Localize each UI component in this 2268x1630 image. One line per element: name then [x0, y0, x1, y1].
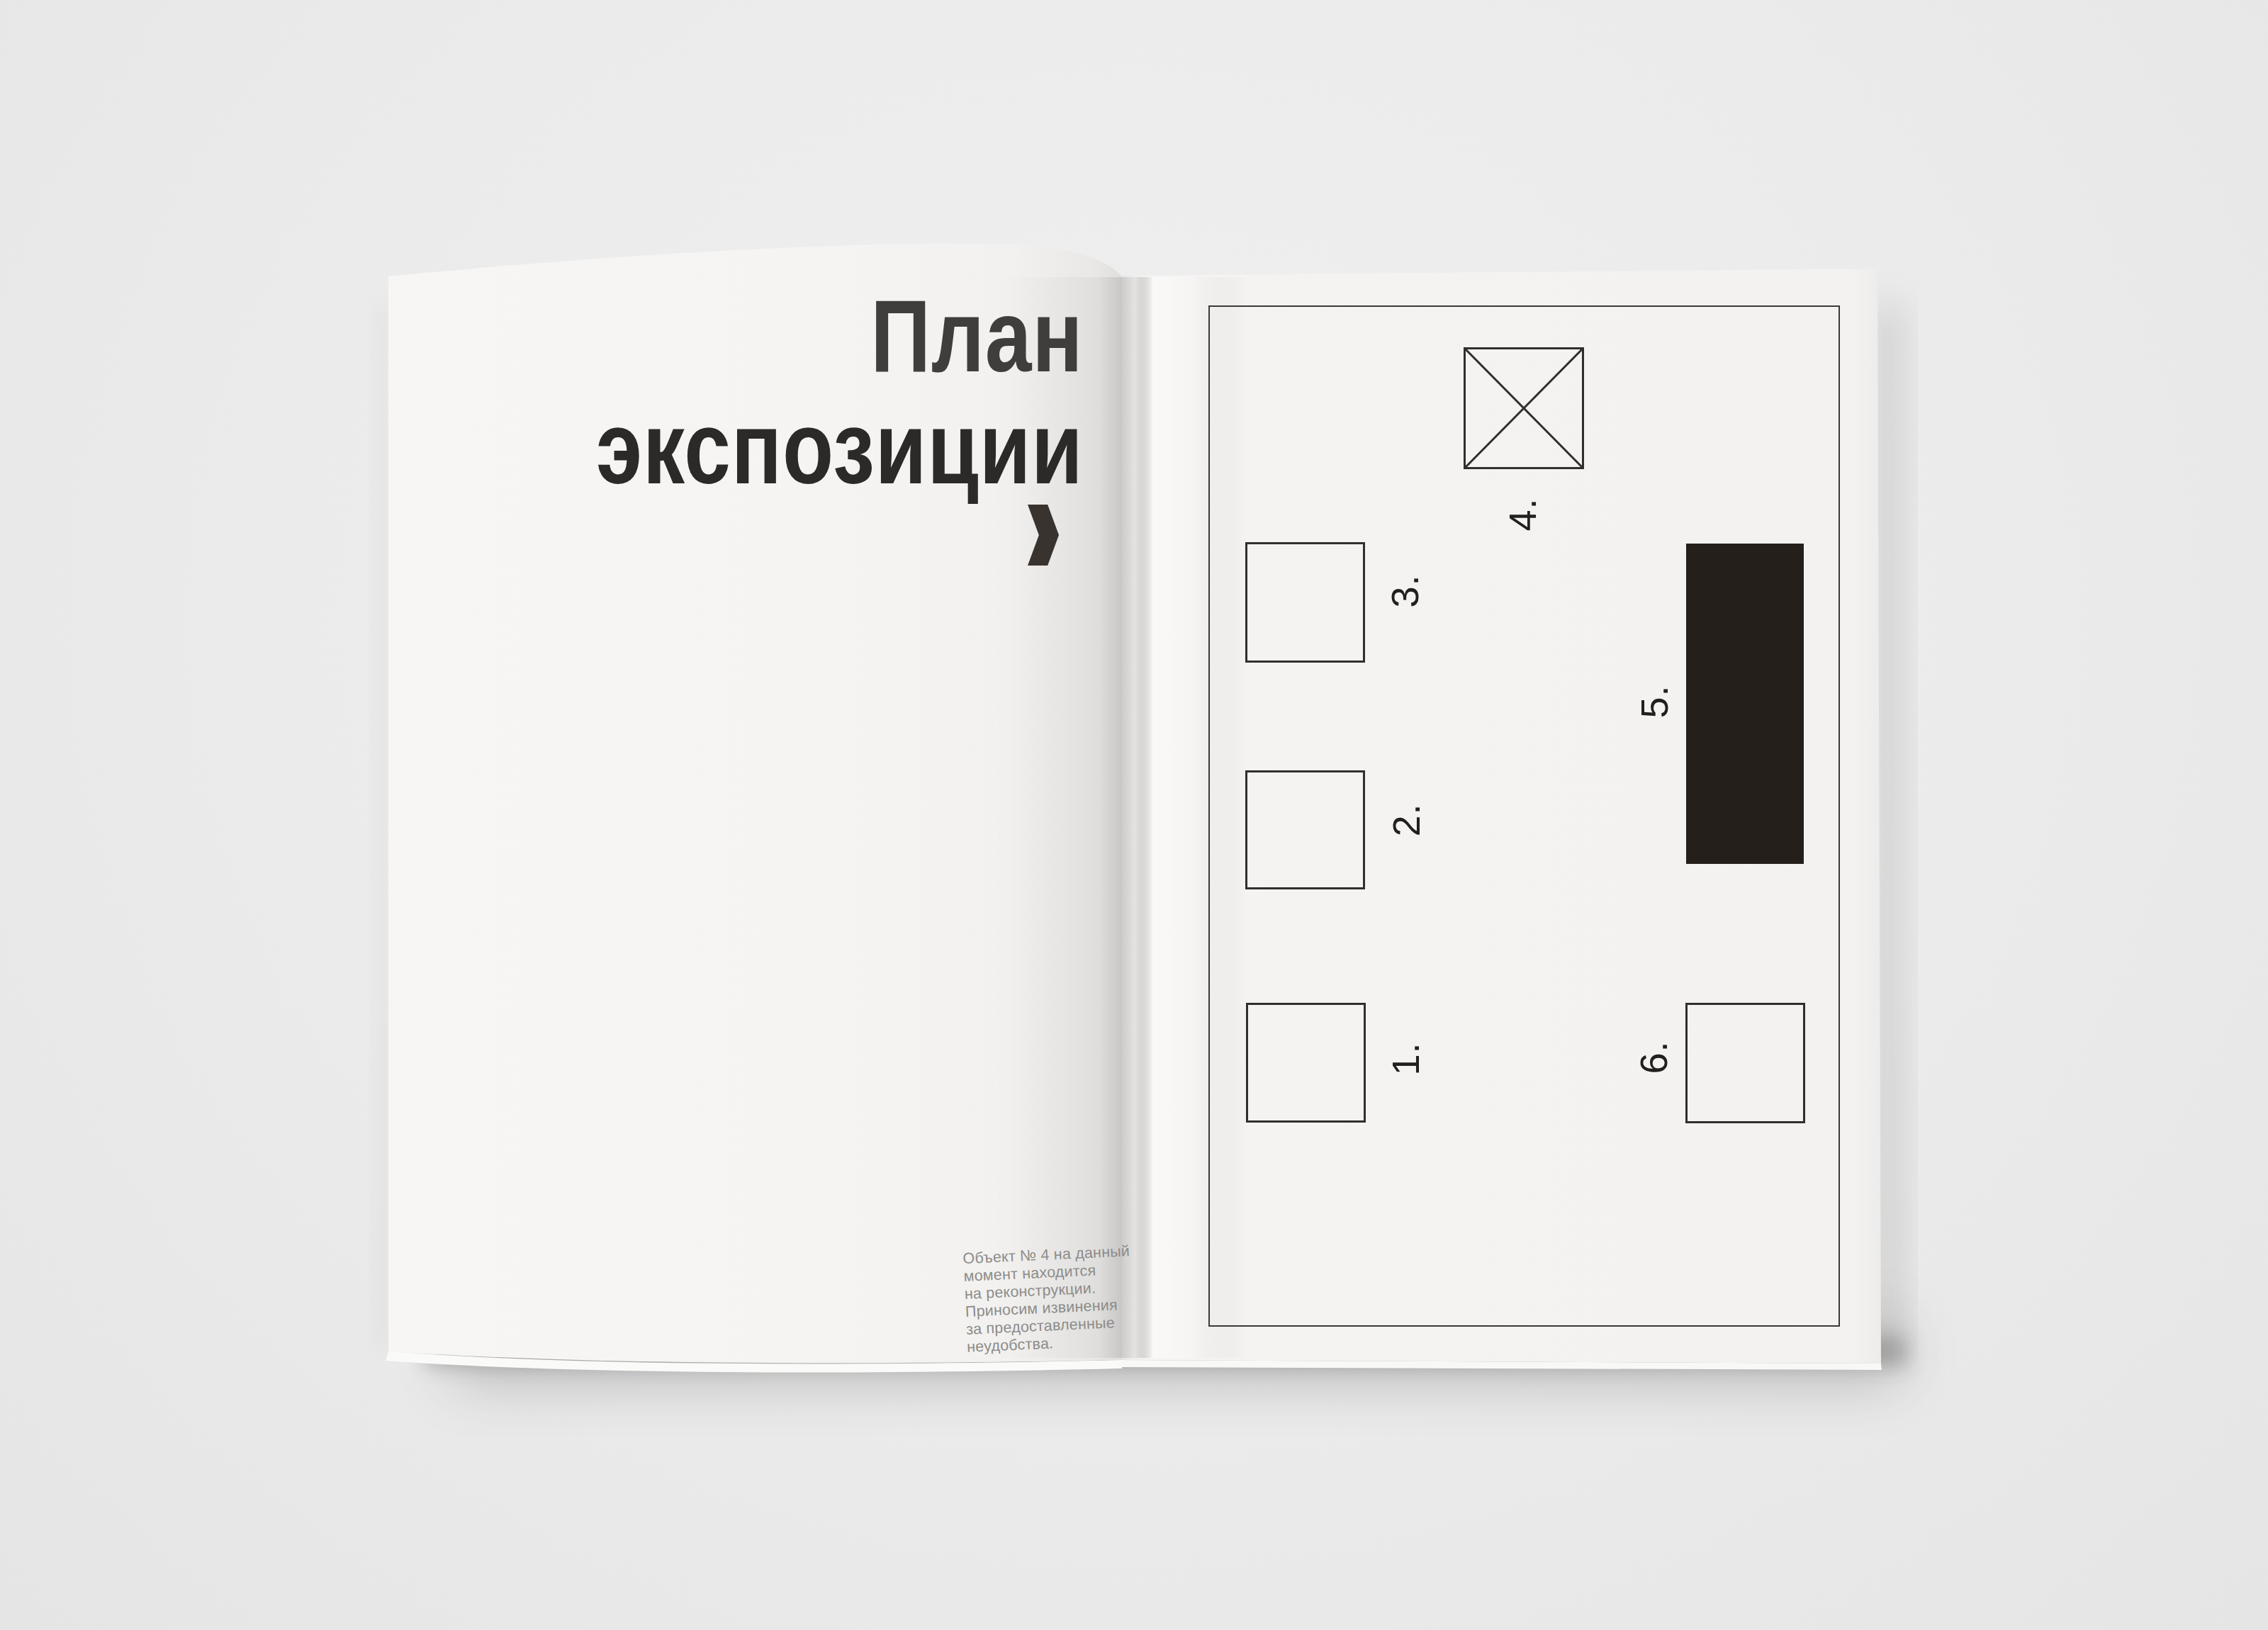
- page-title-line1: План: [595, 281, 1083, 393]
- paper-layer: [0, 0, 2268, 1630]
- plan-room-square-6: [1685, 1003, 1805, 1123]
- plan-label-3: 3.: [1383, 549, 1426, 634]
- book-right-shadow: [1878, 305, 1898, 1354]
- plan-label-1: 1.: [1384, 1016, 1427, 1101]
- page-title-line2: экспозиции: [595, 393, 1083, 505]
- plan-room-square-3: [1245, 542, 1365, 663]
- floor-plan: 1. 2. 3. 4. 5. 6.: [1208, 305, 1840, 1327]
- page-title: План экспозиции: [595, 281, 1083, 505]
- plan-label-6: 6.: [1632, 1015, 1675, 1100]
- crossed-out-icon: [1464, 347, 1584, 469]
- plan-label-2: 2.: [1385, 777, 1427, 862]
- plan-label-5: 5.: [1633, 659, 1675, 744]
- plan-room-square-2: [1245, 770, 1365, 889]
- plan-room-crossed-4: [1464, 347, 1584, 469]
- plan-label-4: 4.: [1501, 472, 1544, 557]
- plan-room-square-1: [1246, 1003, 1366, 1123]
- book-left-shadow: [378, 305, 388, 1347]
- reconstruction-note: Объект № 4 на данный момент находится на…: [962, 1242, 1134, 1356]
- plan-room-filled-5: [1686, 544, 1804, 864]
- magazine-spread-photo: План экспозиции Объект № 4 на данный мом…: [0, 0, 2268, 1630]
